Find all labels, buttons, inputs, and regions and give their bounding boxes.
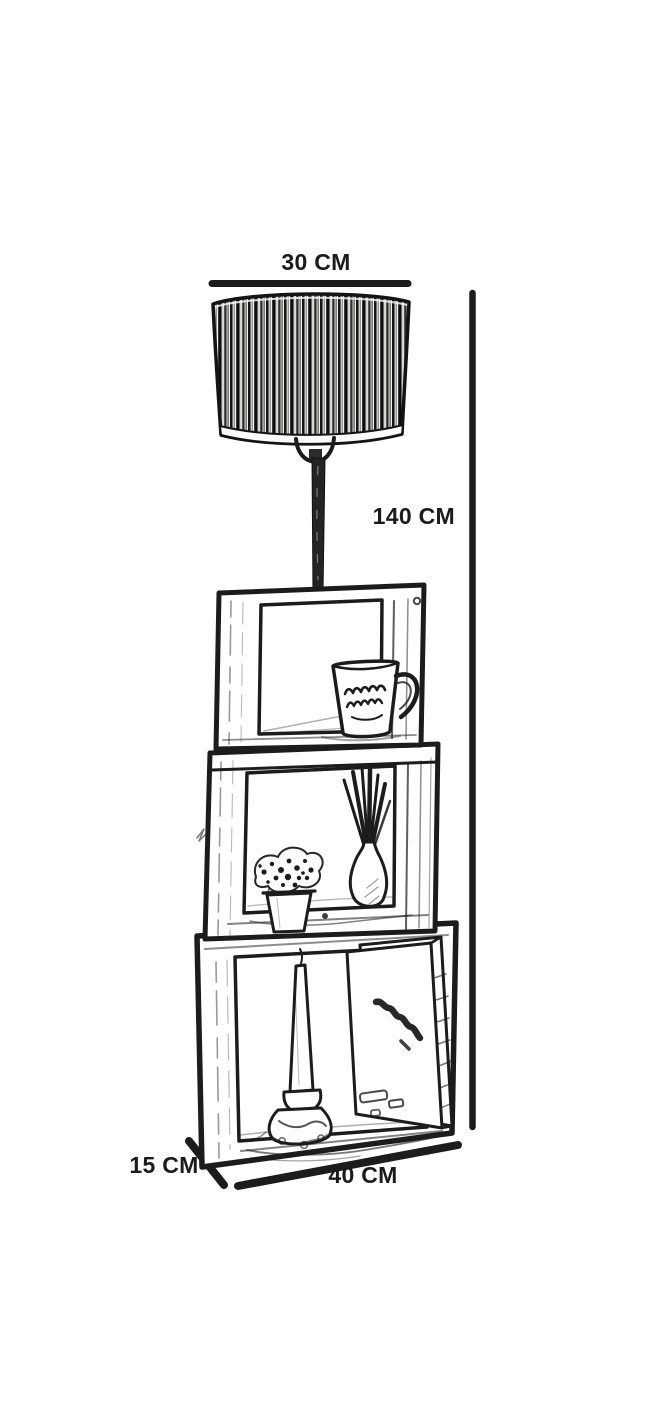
lamp-pole — [296, 438, 334, 592]
product-dimension-diagram: 30 CM 140 CM 15 CM 40 CM — [0, 0, 649, 1403]
depth-label: 15 CM — [128, 1153, 200, 1177]
top-width-label: 30 CM — [216, 250, 416, 274]
diagram-drawing — [0, 0, 649, 1403]
middle-crate — [197, 744, 438, 939]
bottom-width-label: 40 CM — [308, 1163, 418, 1187]
height-label: 140 CM — [337, 504, 455, 528]
lamp-shade — [213, 294, 409, 444]
mug-body — [333, 661, 398, 737]
magazine — [347, 937, 452, 1128]
